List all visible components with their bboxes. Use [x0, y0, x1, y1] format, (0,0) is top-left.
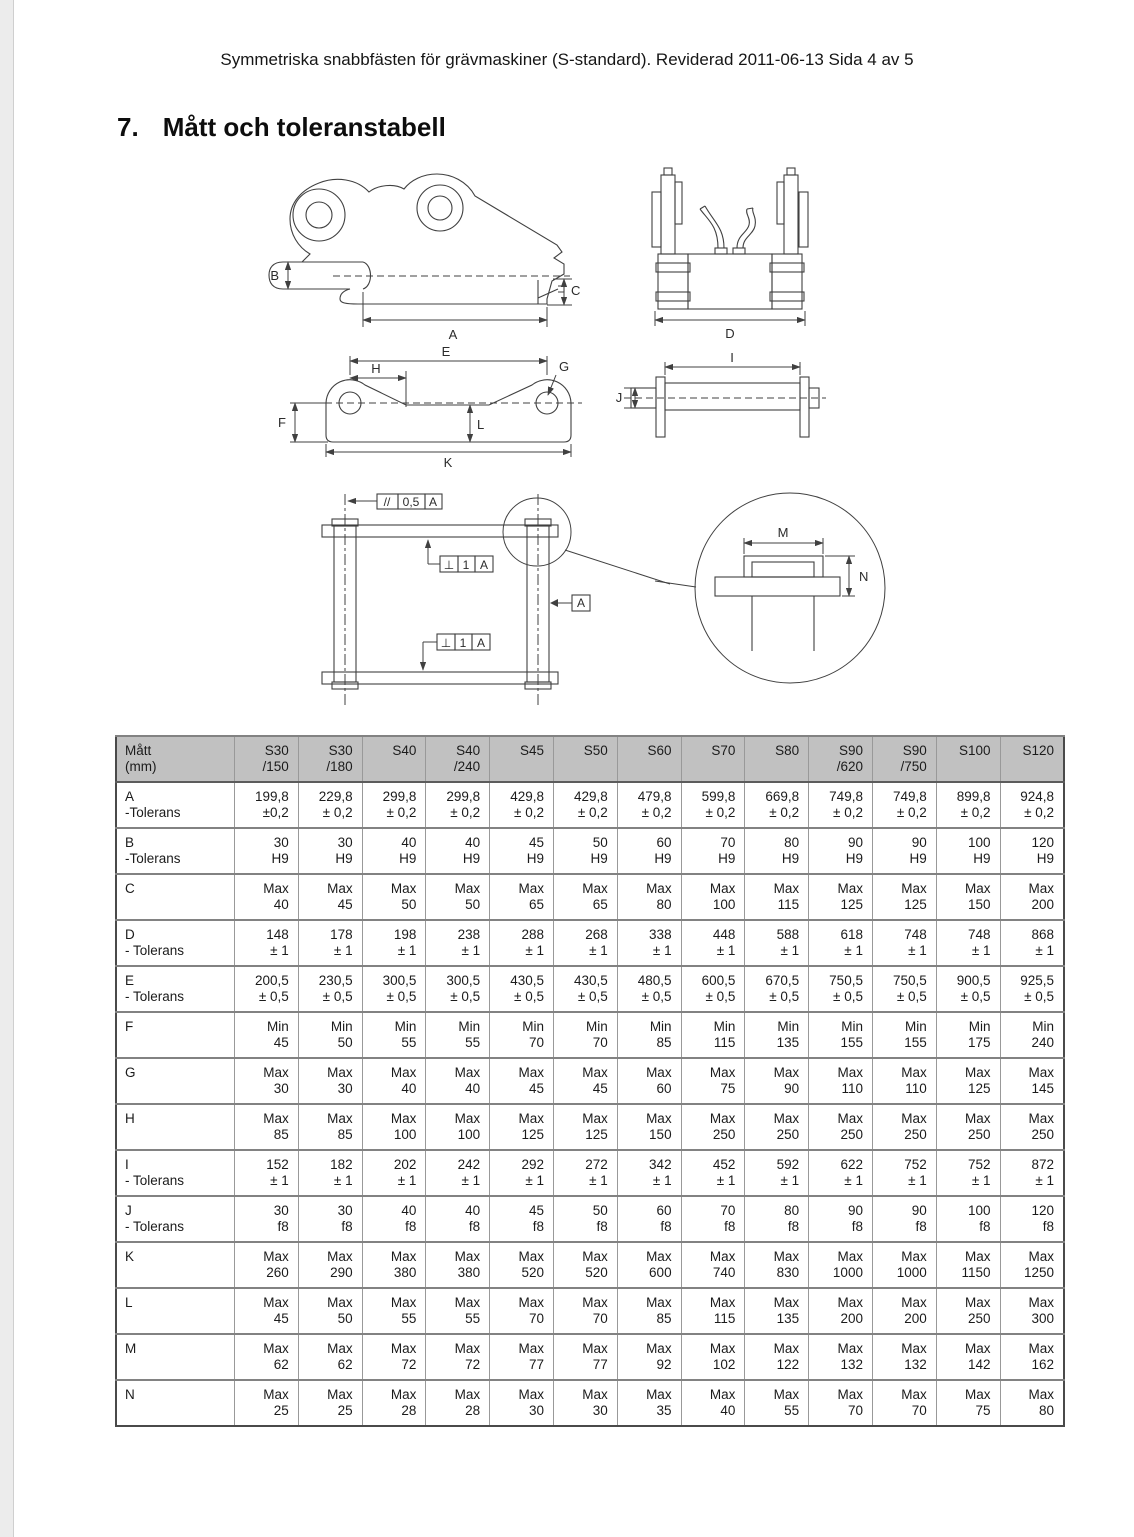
- table-cell: Max135: [745, 1288, 809, 1334]
- table-cell: 300,5± 0,5: [362, 966, 426, 1012]
- drawing-front-view: D: [612, 162, 842, 347]
- table-row: MMax62Max62Max72Max72Max77Max77Max92Max1…: [116, 1334, 1064, 1380]
- table-cell: Max30: [298, 1058, 362, 1104]
- table-cell: Max125: [936, 1058, 1000, 1104]
- drawing-tolerance-frame: // 0,5 A ⊥ 1 A A ⊥ 1 A: [300, 480, 670, 712]
- table-cell: 342± 1: [617, 1150, 681, 1196]
- table-cell: Max250: [809, 1104, 873, 1150]
- table-cell: Min155: [872, 1012, 936, 1058]
- datum-a-label: A: [577, 596, 585, 610]
- table-cell: Max1150: [936, 1242, 1000, 1288]
- boss-ring-right: [417, 185, 463, 231]
- table-cell: Max600: [617, 1242, 681, 1288]
- table-cell: 182± 1: [298, 1150, 362, 1196]
- table-cell: 872± 1: [1000, 1150, 1064, 1196]
- page-edge-strip: [0, 0, 14, 1537]
- table-cell: Max132: [872, 1334, 936, 1380]
- left-pin: [332, 494, 358, 706]
- header-row: Mått(mm)S30/150S30/180S40S40/240S45S50S6…: [116, 736, 1064, 782]
- table-cell: 90f8: [809, 1196, 873, 1242]
- perpendicularity-value: 1: [463, 558, 470, 572]
- table-row: NMax25Max25Max28Max28Max30Max30Max35Max4…: [116, 1380, 1064, 1426]
- table-cell: Max740: [681, 1242, 745, 1288]
- table-cell: Max77: [490, 1334, 554, 1380]
- table-row: KMax260Max290Max380Max380Max520Max520Max…: [116, 1242, 1064, 1288]
- table-row: LMax45Max50Max55Max55Max70Max70Max85Max1…: [116, 1288, 1064, 1334]
- table-cell: 178± 1: [298, 920, 362, 966]
- table-cell: Max65: [553, 874, 617, 920]
- table-cell: Min135: [745, 1012, 809, 1058]
- table-cell: 430,5± 0,5: [490, 966, 554, 1012]
- table-cell: Max200: [872, 1288, 936, 1334]
- table-cell: Max35: [617, 1380, 681, 1426]
- table-cell: Max1000: [872, 1242, 936, 1288]
- table-cell: Max132: [809, 1334, 873, 1380]
- table-cell: 148± 1: [235, 920, 299, 966]
- table-cell: Max250: [1000, 1104, 1064, 1150]
- dim-label-a: A: [449, 327, 458, 342]
- table-cell: Max85: [617, 1288, 681, 1334]
- perpendicularity-tolerance-frame-upper: ⊥ 1 A: [428, 540, 493, 572]
- table-cell: Max50: [426, 874, 490, 920]
- datum-triangle: [550, 599, 558, 607]
- table-cell: 429,8± 0,2: [553, 782, 617, 828]
- section-title-text: Mått och toleranstabell: [163, 112, 446, 143]
- table-cell: 338± 1: [617, 920, 681, 966]
- column-header: S90/620: [809, 736, 873, 782]
- column-header: S40: [362, 736, 426, 782]
- table-row: I- Tolerans152± 1182± 1202± 1242± 1292± …: [116, 1150, 1064, 1196]
- column-header: S30/150: [235, 736, 299, 782]
- table-cell: Max380: [426, 1242, 490, 1288]
- table-cell: Max520: [553, 1242, 617, 1288]
- table-cell: Max70: [553, 1288, 617, 1334]
- table-cell: 152± 1: [235, 1150, 299, 1196]
- table-cell: Max110: [809, 1058, 873, 1104]
- table-cell: 752± 1: [936, 1150, 1000, 1196]
- table-cell: Max65: [490, 874, 554, 920]
- table-cell: Max80: [617, 874, 681, 920]
- parallelism-value: 0,5: [403, 495, 420, 509]
- dim-l: L: [470, 405, 484, 442]
- table-cell: 272± 1: [553, 1150, 617, 1196]
- table-cell: Min115: [681, 1012, 745, 1058]
- table-cell: 90f8: [872, 1196, 936, 1242]
- document-page: { "page": { "header_line": "Symmetriska …: [0, 0, 1134, 1537]
- document-header: Symmetriska snabbfästen för grävmaskiner…: [13, 50, 1121, 70]
- perpendicularity-symbol: ⊥: [441, 636, 451, 650]
- table-row: B-Tolerans30H930H940H940H945H950H960H970…: [116, 828, 1064, 874]
- pin-cylinder: [665, 383, 800, 410]
- plate-outline: [326, 380, 571, 442]
- perpendicularity-symbol: ⊥: [444, 558, 454, 572]
- table-cell: 90H9: [872, 828, 936, 874]
- table-cell: 70H9: [681, 828, 745, 874]
- table-cell: 268± 1: [553, 920, 617, 966]
- table-cell: 120f8: [1000, 1196, 1064, 1242]
- table-cell: 100f8: [936, 1196, 1000, 1242]
- table-cell: 429,8± 0,2: [490, 782, 554, 828]
- flange-right: [800, 377, 809, 437]
- table-cell: Max90: [745, 1058, 809, 1104]
- table-cell: Max100: [362, 1104, 426, 1150]
- table-cell: 200,5± 0,5: [235, 966, 299, 1012]
- corner-header: Mått(mm): [116, 736, 235, 782]
- table-cell: Min85: [617, 1012, 681, 1058]
- table-cell: Max250: [872, 1104, 936, 1150]
- datum-a-flag: A: [550, 595, 590, 611]
- table-cell: Max92: [617, 1334, 681, 1380]
- table-cell: 452± 1: [681, 1150, 745, 1196]
- dim-a: A: [363, 292, 547, 342]
- table-cell: 288± 1: [490, 920, 554, 966]
- table-cell: Max250: [936, 1288, 1000, 1334]
- column-header: S50: [553, 736, 617, 782]
- table-cell: Max250: [681, 1104, 745, 1150]
- table-cell: Max1250: [1000, 1242, 1064, 1288]
- boss-ring-left: [293, 189, 345, 241]
- table-cell: 622± 1: [809, 1150, 873, 1196]
- hole-right: [428, 196, 452, 220]
- drawing-side-plate: E H G F L K: [262, 345, 602, 480]
- dim-label-d: D: [725, 326, 734, 341]
- table-cell: 50f8: [553, 1196, 617, 1242]
- table-cell: 120H9: [1000, 828, 1064, 874]
- detail-connector-line: [655, 581, 696, 587]
- table-row: J- Tolerans30f830f840f840f845f850f860f87…: [116, 1196, 1064, 1242]
- table-cell: 430,5± 0,5: [553, 966, 617, 1012]
- table-cell: 202± 1: [362, 1150, 426, 1196]
- table-cell: 599,8± 0,2: [681, 782, 745, 828]
- table-cell: Max110: [872, 1058, 936, 1104]
- table-cell: 479,8± 0,2: [617, 782, 681, 828]
- table-cell: 748± 1: [936, 920, 1000, 966]
- table-cell: Max45: [553, 1058, 617, 1104]
- table-cell: 242± 1: [426, 1150, 490, 1196]
- table-cell: 30H9: [235, 828, 299, 874]
- row-label: H: [116, 1104, 235, 1150]
- table-row: GMax30Max30Max40Max40Max45Max45Max60Max7…: [116, 1058, 1064, 1104]
- dim-b: B: [270, 262, 288, 289]
- table-cell: 592± 1: [745, 1150, 809, 1196]
- table-cell: 199,8±0,2: [235, 782, 299, 828]
- drawing-detail-view: M N: [655, 483, 935, 708]
- drawing-coupler-side-view: B A C: [255, 158, 590, 353]
- table-cell: Max85: [235, 1104, 299, 1150]
- table-cell: Max45: [298, 874, 362, 920]
- table-cell: 60f8: [617, 1196, 681, 1242]
- dim-m: M: [744, 525, 823, 554]
- dim-label-h: H: [371, 361, 380, 376]
- row-label: J- Tolerans: [116, 1196, 235, 1242]
- dim-label-c: C: [571, 283, 580, 298]
- table-cell: Max50: [362, 874, 426, 920]
- row-label: G: [116, 1058, 235, 1104]
- table-cell: 198± 1: [362, 920, 426, 966]
- section-number: 7.: [117, 112, 139, 143]
- table-cell: Min50: [298, 1012, 362, 1058]
- hole-left: [306, 202, 332, 228]
- table-cell: 749,8± 0,2: [809, 782, 873, 828]
- table-cell: 588± 1: [745, 920, 809, 966]
- detail-circle: [695, 493, 885, 683]
- column-header: S120: [1000, 736, 1064, 782]
- column-header: S70: [681, 736, 745, 782]
- table-cell: Max62: [235, 1334, 299, 1380]
- table-cell: Max25: [235, 1380, 299, 1426]
- table-cell: 40f8: [426, 1196, 490, 1242]
- table-cell: Max75: [936, 1380, 1000, 1426]
- dim-label-i: I: [730, 350, 734, 365]
- table-cell: Max70: [872, 1380, 936, 1426]
- row-label: C: [116, 874, 235, 920]
- table-cell: Min55: [426, 1012, 490, 1058]
- table-cell: 750,5± 0,5: [809, 966, 873, 1012]
- parallelism-datum: A: [429, 495, 437, 509]
- column-header: S90/750: [872, 736, 936, 782]
- pin-cap-outer: [744, 556, 823, 577]
- table-cell: 80f8: [745, 1196, 809, 1242]
- table-cell: Max72: [362, 1334, 426, 1380]
- table-cell: 40H9: [362, 828, 426, 874]
- table-cell: 868± 1: [1000, 920, 1064, 966]
- top-rail: [322, 525, 558, 537]
- table-cell: Max55: [745, 1380, 809, 1426]
- table-cell: 900,5± 0,5: [936, 966, 1000, 1012]
- table-cell: Max150: [617, 1104, 681, 1150]
- table-cell: 752± 1: [872, 1150, 936, 1196]
- row-label: L: [116, 1288, 235, 1334]
- column-header: S100: [936, 736, 1000, 782]
- dim-n: N: [825, 556, 868, 596]
- dim-label-j: J: [616, 390, 623, 405]
- table-cell: Max125: [553, 1104, 617, 1150]
- table-cell: 750,5± 0,5: [872, 966, 936, 1012]
- table-cell: Max30: [235, 1058, 299, 1104]
- table-cell: 90H9: [809, 828, 873, 874]
- dim-f: F: [278, 403, 328, 442]
- table-cell: Min240: [1000, 1012, 1064, 1058]
- dim-d: D: [655, 311, 805, 341]
- table-cell: Max115: [681, 1288, 745, 1334]
- table-cell: 30H9: [298, 828, 362, 874]
- table-cell: Max85: [298, 1104, 362, 1150]
- table-cell: Min55: [362, 1012, 426, 1058]
- perpendicularity-datum: A: [480, 558, 488, 572]
- table-cell: Max300: [1000, 1288, 1064, 1334]
- row-label: E- Tolerans: [116, 966, 235, 1012]
- table-cell: 924,8± 0,2: [1000, 782, 1064, 828]
- table-cell: 299,8± 0,2: [426, 782, 490, 828]
- table-cell: Max45: [235, 1288, 299, 1334]
- right-side-plate: [770, 168, 808, 309]
- table-cell: Max102: [681, 1334, 745, 1380]
- section-title: 7. Mått och toleranstabell: [117, 112, 446, 143]
- column-header: S40/240: [426, 736, 490, 782]
- table-cell: 80H9: [745, 828, 809, 874]
- table-cell: Max290: [298, 1242, 362, 1288]
- table-cell: Max30: [553, 1380, 617, 1426]
- table-row: E- Tolerans200,5± 0,5230,5± 0,5300,5± 0,…: [116, 966, 1064, 1012]
- table-row: D- Tolerans148± 1178± 1198± 1238± 1288± …: [116, 920, 1064, 966]
- table-cell: Max60: [617, 1058, 681, 1104]
- table-cell: Max380: [362, 1242, 426, 1288]
- table-cell: 40f8: [362, 1196, 426, 1242]
- table-cell: Max50: [298, 1288, 362, 1334]
- parallelism-symbol: //: [384, 495, 391, 509]
- table-cell: Max162: [1000, 1334, 1064, 1380]
- row-label: F: [116, 1012, 235, 1058]
- drawing-pin: I J: [608, 350, 848, 470]
- row-label: A-Tolerans: [116, 782, 235, 828]
- table-cell: Max150: [936, 874, 1000, 920]
- table-cell: Max40: [362, 1058, 426, 1104]
- table-cell: 30f8: [298, 1196, 362, 1242]
- dim-label-k: K: [444, 455, 453, 470]
- dim-k: K: [326, 444, 571, 470]
- table-cell: Max28: [362, 1380, 426, 1426]
- table-cell: Max45: [490, 1058, 554, 1104]
- hydraulic-hoses: [700, 206, 755, 254]
- table-cell: Max70: [809, 1380, 873, 1426]
- row-label: N: [116, 1380, 235, 1426]
- table-cell: Max75: [681, 1058, 745, 1104]
- table-cell: Max122: [745, 1334, 809, 1380]
- table-cell: Max250: [745, 1104, 809, 1150]
- table-cell: 618± 1: [809, 920, 873, 966]
- table-cell: Max145: [1000, 1058, 1064, 1104]
- column-header: S30/180: [298, 736, 362, 782]
- row-label: K: [116, 1242, 235, 1288]
- table-cell: Max28: [426, 1380, 490, 1426]
- row-label: I- Tolerans: [116, 1150, 235, 1196]
- table-cell: Min70: [490, 1012, 554, 1058]
- table-cell: 749,8± 0,2: [872, 782, 936, 828]
- table-cell: 925,5± 0,5: [1000, 966, 1064, 1012]
- table-row: FMin45Min50Min55Min55Min70Min70Min85Min1…: [116, 1012, 1064, 1058]
- detail-callout-circle: [503, 498, 571, 566]
- table-cell: 100H9: [936, 828, 1000, 874]
- table-cell: Max40: [235, 874, 299, 920]
- table-cell: Max830: [745, 1242, 809, 1288]
- table-cell: 45H9: [490, 828, 554, 874]
- table-cell: 45f8: [490, 1196, 554, 1242]
- table-cell: Max1000: [809, 1242, 873, 1288]
- table-cell: Max100: [426, 1104, 490, 1150]
- table-row: HMax85Max85Max100Max100Max125Max125Max15…: [116, 1104, 1064, 1150]
- table-cell: 292± 1: [490, 1150, 554, 1196]
- table-cell: Max25: [298, 1380, 362, 1426]
- table-cell: 448± 1: [681, 920, 745, 966]
- table-cell: 600,5± 0,5: [681, 966, 745, 1012]
- dimensions-table: Mått(mm)S30/150S30/180S40S40/240S45S50S6…: [115, 735, 1065, 1427]
- table-cell: 229,8± 0,2: [298, 782, 362, 828]
- dim-label-l: L: [477, 417, 484, 432]
- dim-label-b: B: [270, 268, 279, 283]
- table-cell: Max125: [490, 1104, 554, 1150]
- table-cell: Max40: [681, 1380, 745, 1426]
- table-cell: 40H9: [426, 828, 490, 874]
- table-cell: Max30: [490, 1380, 554, 1426]
- table-cell: Max520: [490, 1242, 554, 1288]
- parallelism-tolerance-frame: // 0,5 A: [348, 494, 442, 509]
- right-pin: [525, 494, 551, 706]
- perpendicularity-value: 1: [460, 636, 467, 650]
- table-cell: Max100: [681, 874, 745, 920]
- row-label: D- Tolerans: [116, 920, 235, 966]
- table-cell: 230,5± 0,5: [298, 966, 362, 1012]
- table-cell: Max200: [809, 1288, 873, 1334]
- dim-label-f: F: [278, 415, 286, 430]
- column-header: S60: [617, 736, 681, 782]
- table-cell: 70f8: [681, 1196, 745, 1242]
- table-cell: 480,5± 0,5: [617, 966, 681, 1012]
- table-cell: Max200: [1000, 874, 1064, 920]
- perpendicularity-datum: A: [477, 636, 485, 650]
- flange-left: [656, 377, 665, 437]
- table-cell: Max55: [362, 1288, 426, 1334]
- row-label: M: [116, 1334, 235, 1380]
- table-cell: 60H9: [617, 828, 681, 874]
- column-header: S80: [745, 736, 809, 782]
- table-cell: Max142: [936, 1334, 1000, 1380]
- table-cell: Min175: [936, 1012, 1000, 1058]
- table-cell: Max72: [426, 1334, 490, 1380]
- table-cell: Max115: [745, 874, 809, 920]
- table-cell: 669,8± 0,2: [745, 782, 809, 828]
- dim-label-e: E: [442, 345, 451, 359]
- center-body: [688, 254, 772, 309]
- table-cell: Max62: [298, 1334, 362, 1380]
- table-cell: Max55: [426, 1288, 490, 1334]
- table-cell: Min70: [553, 1012, 617, 1058]
- table-cell: 30f8: [235, 1196, 299, 1242]
- table-cell: Max125: [872, 874, 936, 920]
- left-side-plate: [652, 168, 690, 309]
- perpendicularity-tolerance-frame-lower: ⊥ 1 A: [423, 634, 490, 670]
- coupler-body-outline: [290, 174, 564, 304]
- table-cell: Max70: [490, 1288, 554, 1334]
- dim-label-m: M: [778, 525, 789, 540]
- table-cell: Min45: [235, 1012, 299, 1058]
- table-cell: 50H9: [553, 828, 617, 874]
- dim-label-g: G: [559, 359, 569, 374]
- table-cell: 299,8± 0,2: [362, 782, 426, 828]
- table-cell: Max80: [1000, 1380, 1064, 1426]
- pin-shaft-lines: [752, 596, 814, 651]
- coupler-bottom-hook: [340, 289, 358, 304]
- table-cell: Max77: [553, 1334, 617, 1380]
- table-cell: 748± 1: [872, 920, 936, 966]
- table-cell: 899,8± 0,2: [936, 782, 1000, 828]
- table-cell: 300,5± 0,5: [426, 966, 490, 1012]
- dim-h: H: [350, 361, 406, 407]
- dim-i: I: [665, 350, 800, 375]
- table-cell: Max260: [235, 1242, 299, 1288]
- table-cell: Min155: [809, 1012, 873, 1058]
- table-cell: Max40: [426, 1058, 490, 1104]
- rail-cross-section: [715, 577, 840, 596]
- table-row: CMax40Max45Max50Max50Max65Max65Max80Max1…: [116, 874, 1064, 920]
- table-cell: Max250: [936, 1104, 1000, 1150]
- table-cell: 670,5± 0,5: [745, 966, 809, 1012]
- row-label: B-Tolerans: [116, 828, 235, 874]
- pin-cap-inner: [752, 562, 814, 577]
- column-header: S45: [490, 736, 554, 782]
- table-cell: 238± 1: [426, 920, 490, 966]
- table-cell: Max125: [809, 874, 873, 920]
- table-row: A-Tolerans199,8±0,2229,8± 0,2299,8± 0,22…: [116, 782, 1064, 828]
